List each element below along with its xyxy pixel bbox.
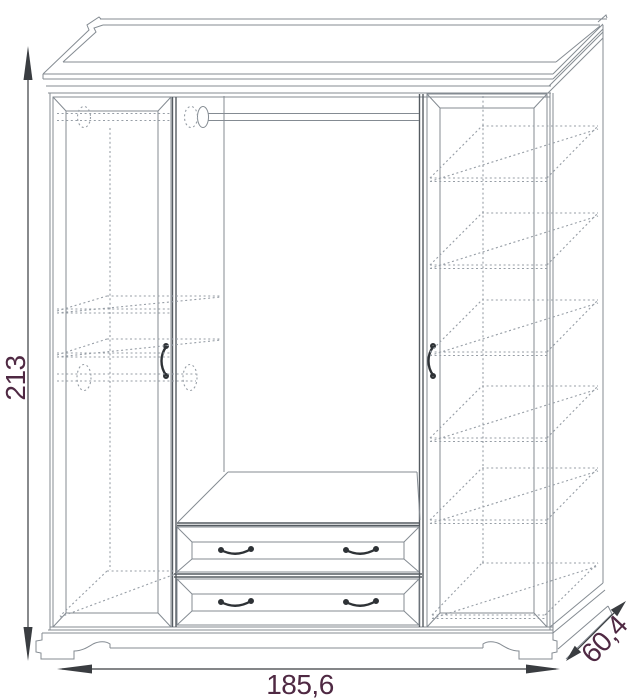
rod-bracket	[198, 107, 209, 128]
left-door	[53, 97, 171, 627]
plinth-and-feet	[36, 633, 557, 659]
right-door	[427, 94, 547, 627]
width-label: 185,6	[266, 669, 334, 700]
partitions	[173, 94, 424, 627]
hidden-interior-left	[57, 107, 221, 618]
diagram-canvas: 213 185,6 60,4	[0, 0, 630, 700]
hanging-rod	[198, 107, 420, 128]
depth-label: 60,4	[575, 609, 630, 669]
dimension-height: 213	[0, 46, 33, 661]
drawers	[177, 527, 419, 625]
height-label: 213	[0, 355, 31, 400]
left-door-handle	[162, 344, 168, 378]
dimension-width: 185,6	[57, 665, 560, 700]
cornice	[43, 15, 607, 93]
wardrobe-body	[48, 93, 553, 633]
middle-section-interior	[178, 96, 420, 522]
hidden-shelves-right	[430, 96, 598, 619]
dimension-depth: 60,4	[566, 601, 630, 669]
wardrobe-diagram: 213 185,6 60,4	[0, 0, 630, 700]
right-door-handle	[429, 344, 435, 378]
side-panel	[550, 25, 612, 659]
